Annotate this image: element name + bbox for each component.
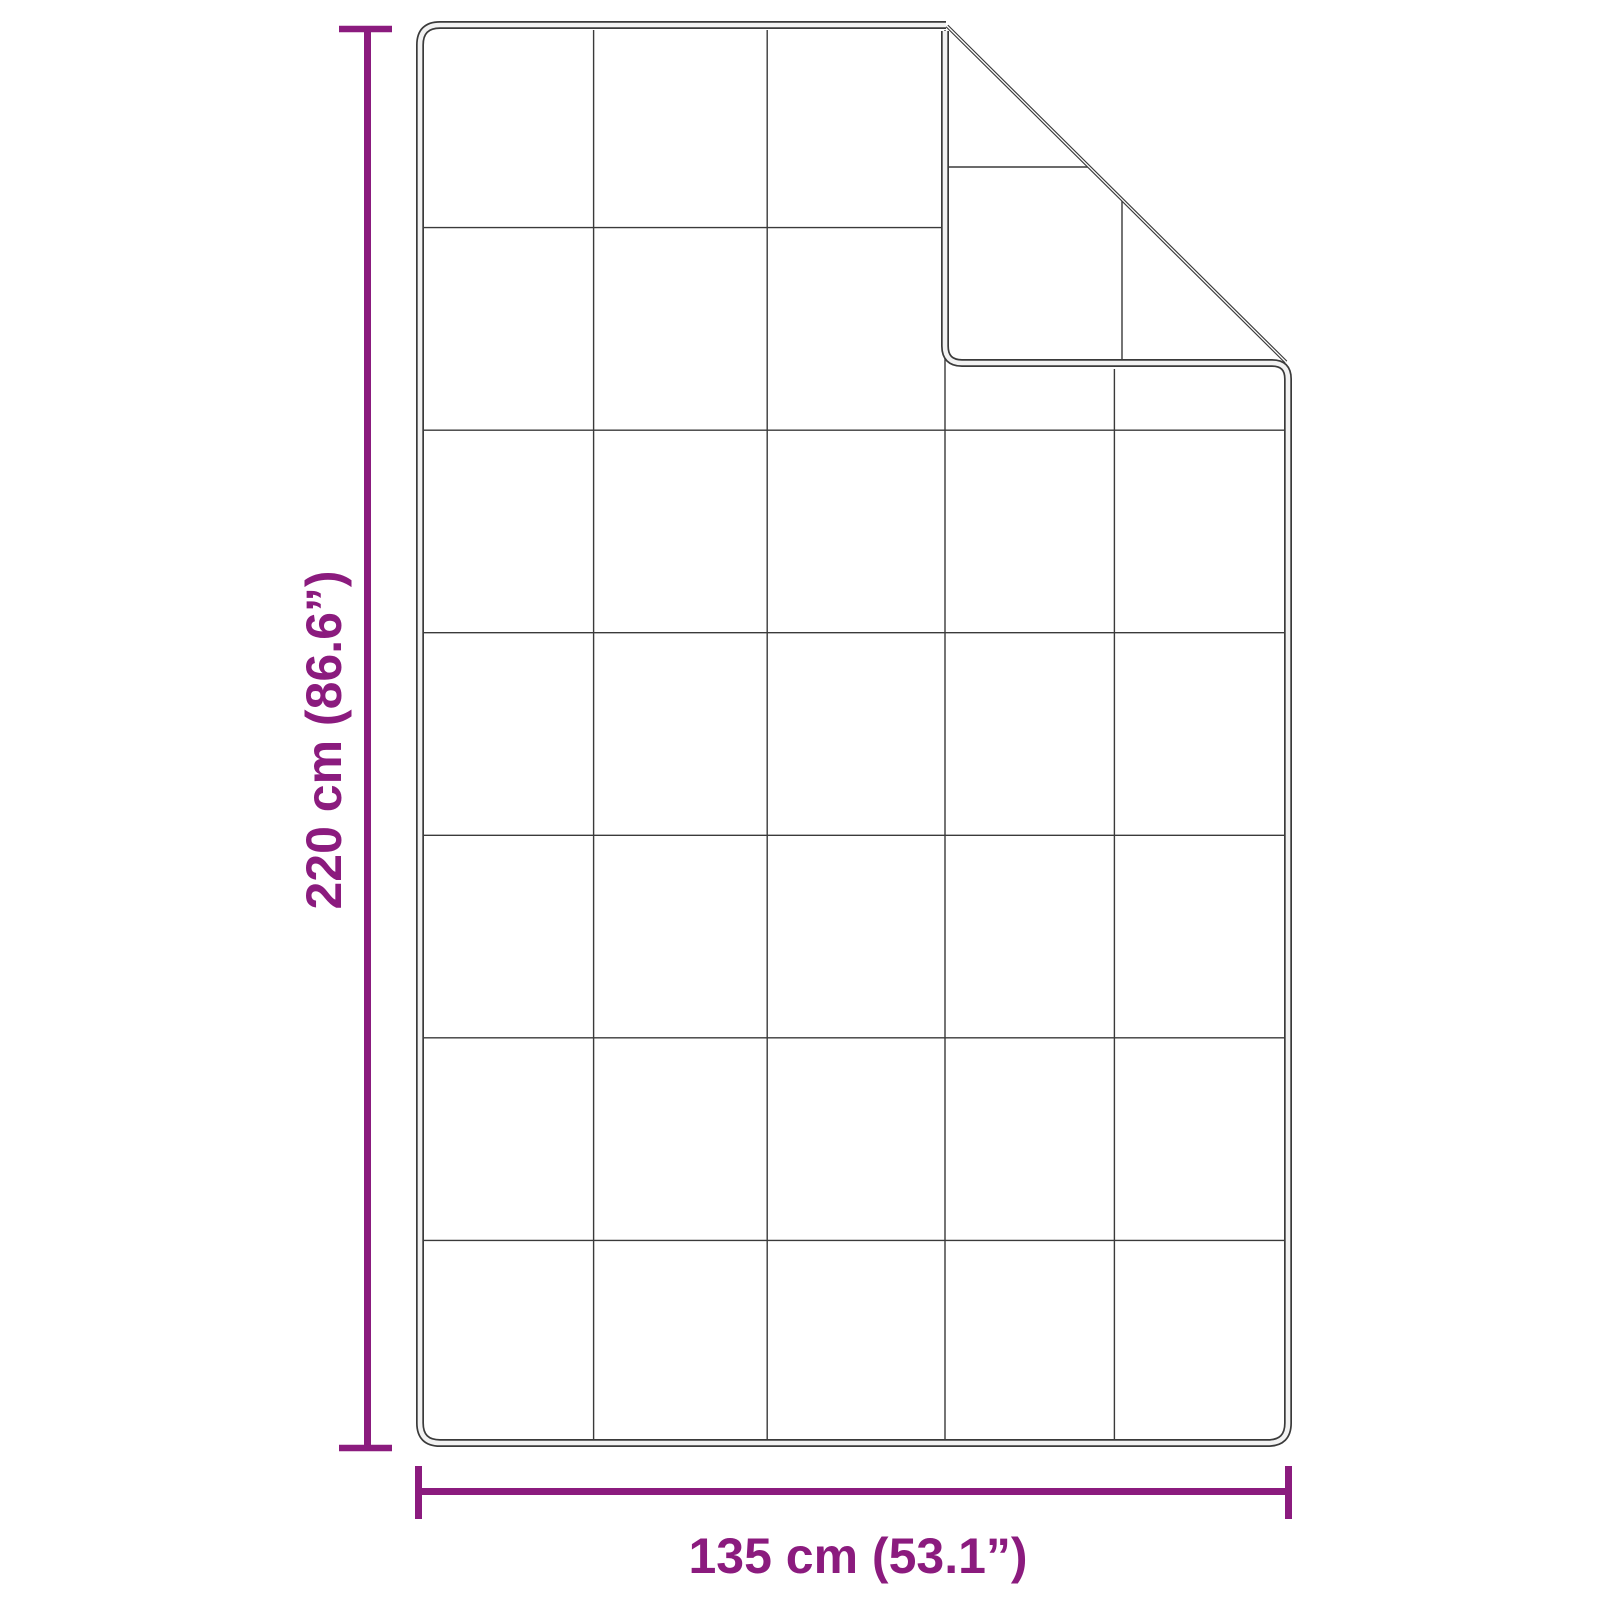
- width-dimension: 135 cm (53.1”): [419, 1466, 1289, 1584]
- blanket: [420, 25, 1288, 1443]
- height-dimension-label: 220 cm (86.6”): [296, 570, 352, 909]
- width-dimension-label: 135 cm (53.1”): [688, 1528, 1027, 1584]
- height-dimension: 220 cm (86.6”): [296, 29, 392, 1448]
- blanket-silhouette: [420, 25, 1288, 1443]
- blanket-dimension-diagram: 220 cm (86.6”) 135 cm (53.1”): [0, 0, 1600, 1600]
- dimension-illustration: 220 cm (86.6”) 135 cm (53.1”): [0, 0, 1600, 1600]
